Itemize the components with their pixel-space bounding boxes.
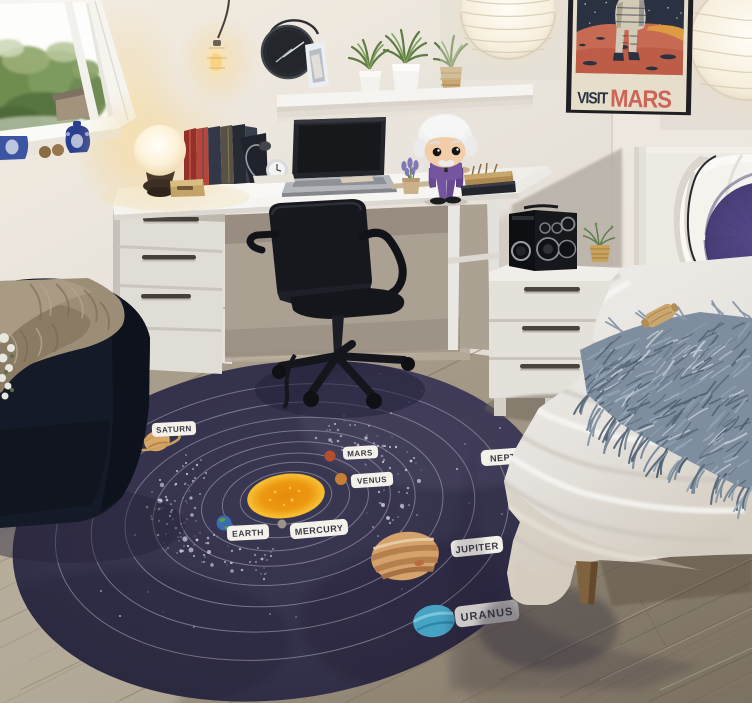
svg-text:SATURN: SATURN xyxy=(156,424,192,435)
svg-text:MARS: MARS xyxy=(610,84,672,113)
svg-text:MARS: MARS xyxy=(347,448,373,458)
svg-text:VISIT: VISIT xyxy=(577,89,609,108)
svg-text:EARTH: EARTH xyxy=(232,527,264,539)
